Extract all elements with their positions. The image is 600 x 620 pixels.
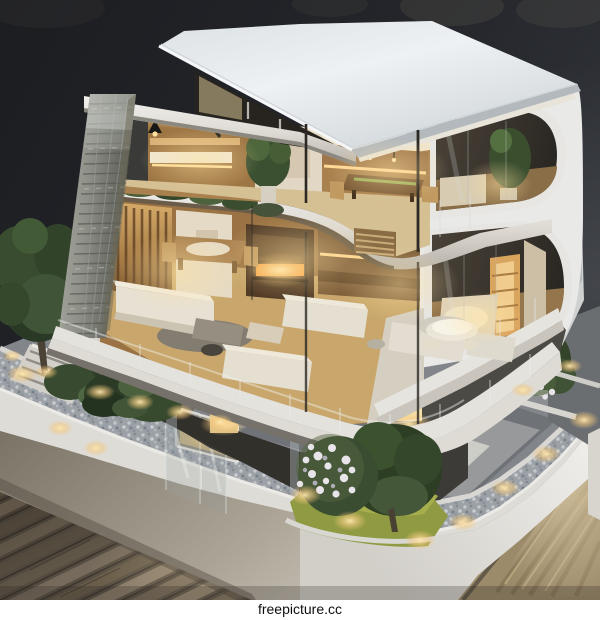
svg-text:freepicture.cc: freepicture.cc (258, 601, 342, 617)
